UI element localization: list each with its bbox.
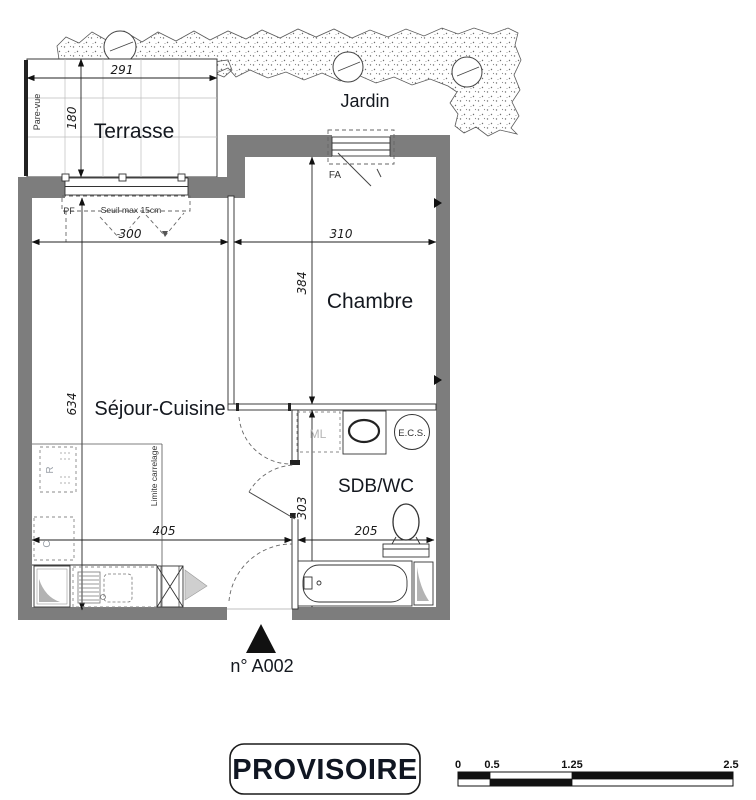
entrance-marker: n° A002 — [230, 624, 293, 676]
dim-sdb-depth: 303 — [295, 497, 309, 520]
scale-tick-05: 0.5 — [484, 759, 499, 771]
door-jamb — [290, 460, 300, 465]
dim-sejour-lower-width: 405 — [153, 524, 176, 538]
corner-panel-right — [414, 562, 433, 605]
wall-bottom-right — [292, 607, 450, 620]
corner-panel-left — [34, 566, 70, 607]
door-jamb — [236, 403, 239, 411]
kitchen-sink — [78, 572, 132, 603]
pf-jamb-block — [119, 174, 126, 181]
partition-sejour-chambre — [228, 196, 234, 406]
fa-frame — [332, 137, 390, 156]
sdb-door-leaf — [249, 492, 295, 519]
fridge-hinge-marks — [60, 453, 72, 483]
scale-tick-25: 2.5 — [723, 759, 738, 771]
bathtub — [298, 561, 412, 606]
dim-terrace-depth: 180 — [65, 106, 79, 129]
floor-plan-page: Jardin Pare-vue Terrasse — [0, 0, 756, 800]
kitchen-fixtures: R C Limite carrelage — [32, 444, 207, 607]
wall-left — [18, 177, 32, 620]
room-label-terrasse: Terrasse — [94, 120, 175, 143]
partition-sejour-sdb-lower — [292, 517, 298, 609]
pf-jamb-block — [178, 174, 185, 181]
washbasin-bowl — [349, 420, 379, 442]
unit-number: n° A002 — [230, 656, 293, 676]
room-label-chambre: Chambre — [327, 290, 413, 313]
fa-label: FA — [329, 170, 342, 181]
tree-symbol — [104, 31, 136, 63]
kitchen-counter — [73, 567, 158, 607]
entrance-door-swing-arc — [229, 544, 292, 601]
fa-opening-line — [338, 153, 371, 186]
dim-sejour-depth: 634 — [65, 393, 79, 416]
door-swings — [227, 417, 295, 609]
scale-bar: 0 0.5 1.25 2.5 — [455, 759, 739, 786]
wall-top-left-of-window — [227, 135, 332, 157]
partition-chambre-sdb — [228, 404, 436, 410]
pare-vue-label: Pare-vue — [32, 94, 42, 131]
pare-vue-screen — [24, 60, 28, 176]
cooker-box — [34, 517, 74, 560]
bathtub-faucet — [304, 577, 312, 589]
wall-bottom-left — [18, 607, 227, 620]
room-label-sejour-cuisine: Séjour-Cuisine — [94, 398, 225, 420]
water-heater-label: E.C.S. — [398, 428, 425, 439]
pf-jamb-block — [62, 174, 69, 181]
fridge-label: R — [45, 466, 56, 473]
room-labels: Chambre Séjour-Cuisine SDB/WC — [94, 290, 414, 497]
dim-sejour-width: 300 — [119, 227, 142, 241]
door-jamb — [288, 403, 291, 411]
sdb-door-swing-arc — [249, 465, 295, 492]
pf-label: PF — [63, 206, 75, 216]
seuil-note: Seuil max 15cm — [101, 205, 161, 215]
provisional-stamp: PROVISOIRE — [230, 744, 420, 794]
toilet — [383, 504, 429, 557]
chambre-door-swing-arc — [239, 417, 290, 464]
scale-tick-125: 1.25 — [561, 759, 582, 771]
bathroom-fixtures: ML E.C.S. — [297, 411, 433, 606]
wall-terrace-left — [18, 177, 65, 198]
scale-tick-0: 0 — [455, 759, 461, 771]
tile-limit-label: Limite carrelage — [149, 445, 159, 506]
fa-opening-dash — [377, 169, 381, 177]
dim-chambre-depth: 384 — [295, 272, 309, 295]
washing-machine-label: ML — [310, 427, 327, 441]
chambre-window-fa: FA — [328, 130, 394, 186]
dim-chambre-width: 310 — [330, 227, 353, 241]
dim-terrace-width: 291 — [111, 63, 134, 77]
entrance-arrow-icon — [246, 624, 276, 653]
wall-right — [436, 135, 450, 620]
closet-door-fan — [185, 570, 207, 600]
cooker-label: C — [42, 540, 53, 547]
room-label-jardin: Jardin — [340, 91, 389, 111]
stamp-text: PROVISOIRE — [232, 754, 418, 786]
tree-symbol — [452, 57, 482, 87]
floor-plan-drawing: Jardin Pare-vue Terrasse — [0, 0, 756, 800]
dim-sdb-width: 205 — [355, 524, 378, 538]
technical-duct — [157, 566, 183, 607]
room-label-sdb-wc: SDB/WC — [338, 476, 414, 497]
tree-symbol — [333, 52, 363, 82]
